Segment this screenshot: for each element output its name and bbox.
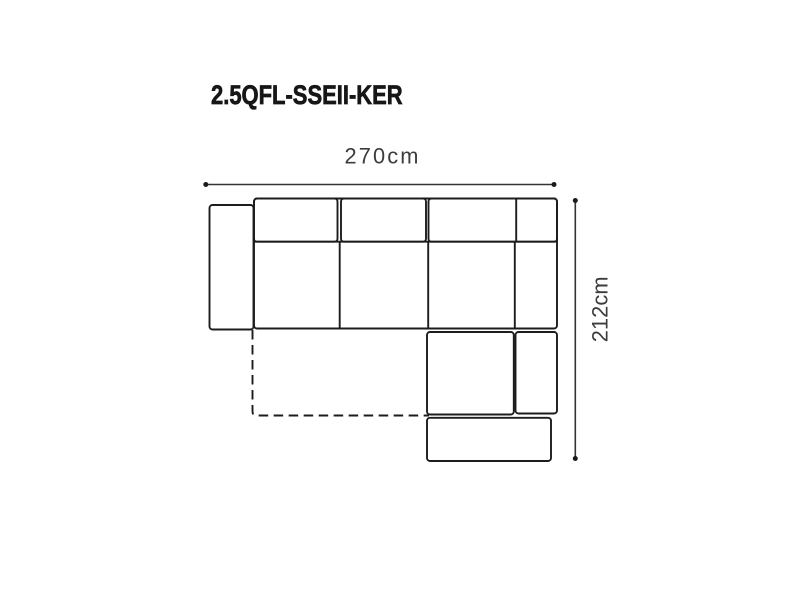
svg-text:212cm: 212cm [588, 276, 613, 342]
svg-text:270cm: 270cm [345, 144, 421, 169]
svg-text:2.5QFL-SSEII-KER: 2.5QFL-SSEII-KER [211, 81, 403, 111]
